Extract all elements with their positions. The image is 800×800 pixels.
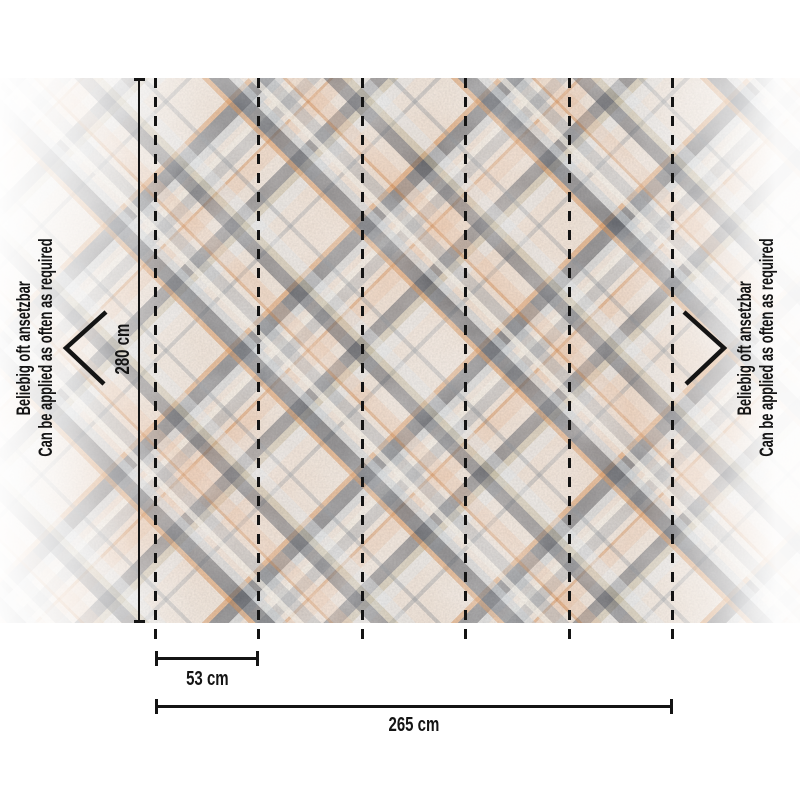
repeatable-note-left: Beliebig oft ansetzbar Can be applied as… bbox=[14, 188, 58, 508]
panel-seam-line bbox=[154, 78, 157, 645]
panel-width-dimension-label: 53 cm bbox=[155, 668, 259, 691]
panel-seam-line bbox=[361, 78, 364, 645]
panel-seam-line bbox=[257, 78, 260, 645]
panel-seam-line bbox=[568, 78, 571, 645]
height-dimension-line bbox=[138, 79, 140, 622]
height-dimension-cap-bottom bbox=[134, 620, 145, 623]
height-dimension-cap-top bbox=[134, 78, 145, 81]
repeatable-note-right: Beliebig oft ansetzbar Can be applied as… bbox=[735, 188, 779, 508]
height-dimension-label: 280 cm bbox=[111, 309, 135, 389]
repeatable-note-left-en: Can be applied as often as required bbox=[36, 188, 58, 508]
repeatable-note-left-de: Beliebig oft ansetzbar bbox=[14, 188, 36, 508]
panel-width-cap-right bbox=[256, 651, 259, 666]
repeatable-note-right-en: Can be applied as often as required bbox=[757, 188, 779, 508]
chevron-right-icon bbox=[682, 306, 730, 390]
total-width-cap-right bbox=[670, 699, 673, 714]
panel-width-cap-left bbox=[155, 651, 158, 666]
chevron-left-icon bbox=[60, 306, 108, 390]
total-width-cap-left bbox=[155, 699, 158, 714]
total-width-dimension-line bbox=[155, 705, 673, 708]
panel-seam-line bbox=[464, 78, 467, 645]
panel-width-dimension-line bbox=[155, 657, 259, 660]
total-width-dimension-label: 265 cm bbox=[155, 714, 673, 737]
panel-seam-line bbox=[671, 78, 674, 645]
repeatable-note-right-de: Beliebig oft ansetzbar bbox=[735, 188, 757, 508]
